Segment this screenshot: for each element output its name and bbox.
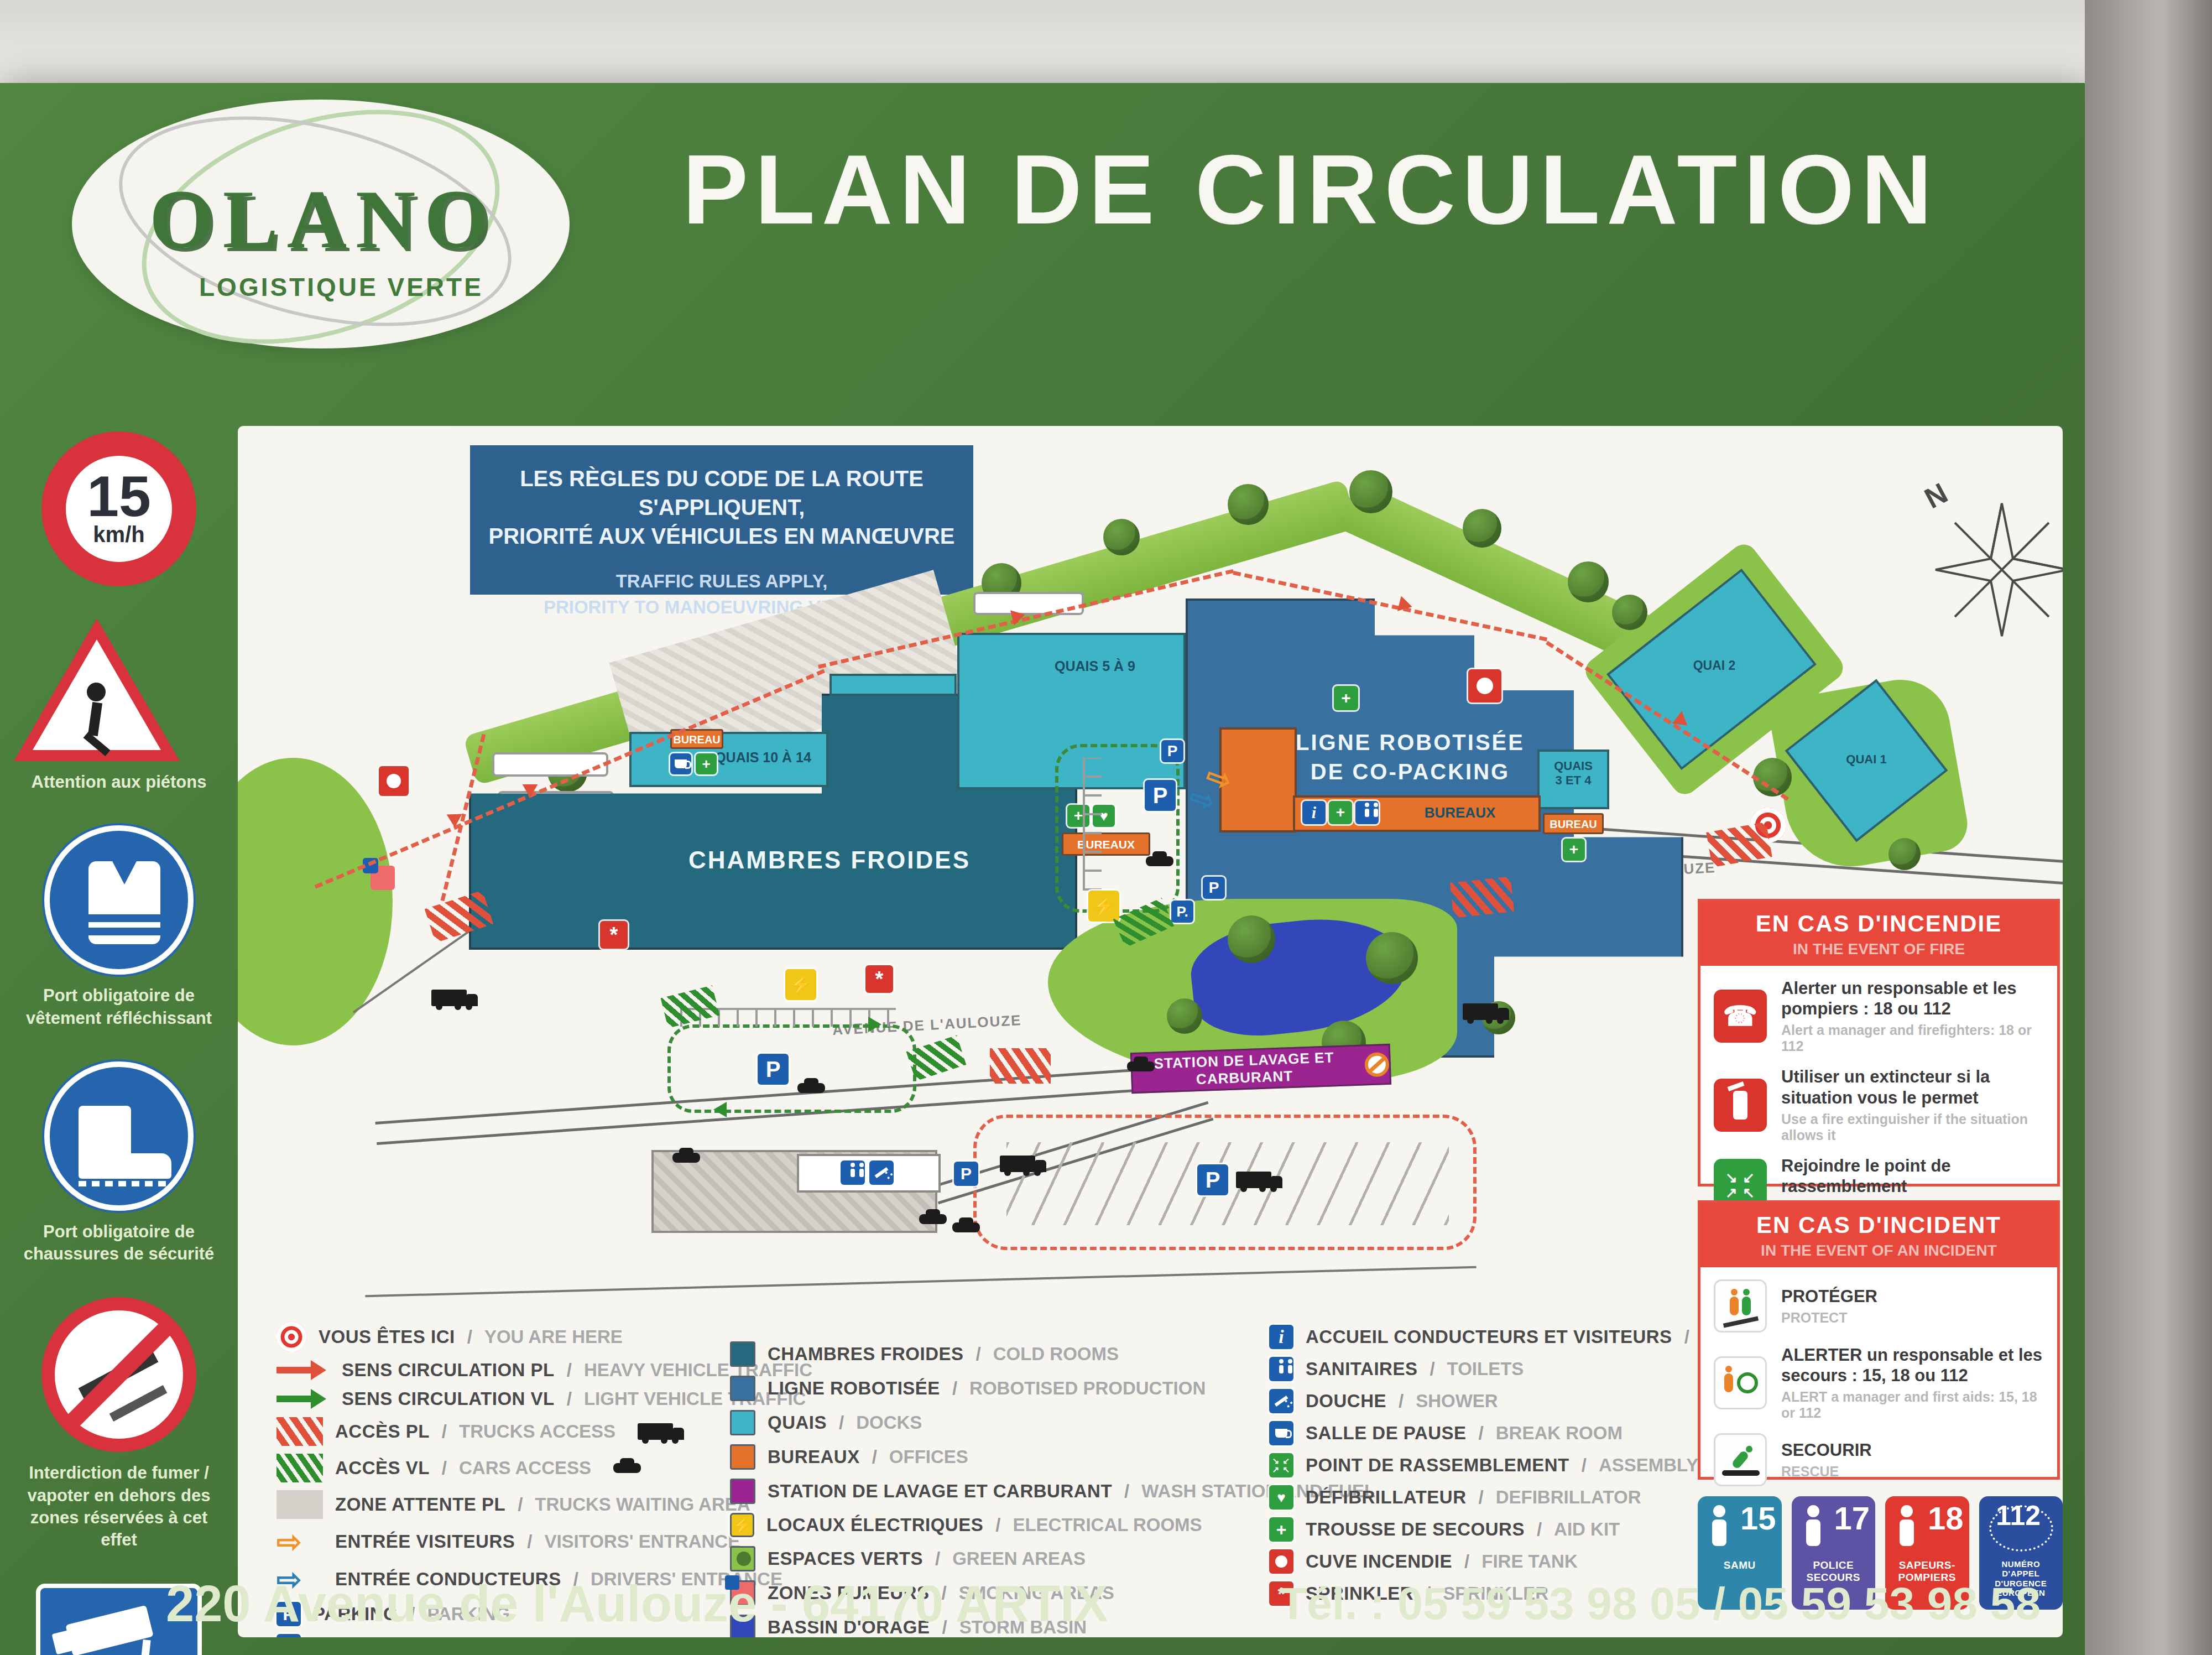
parking-icon-small: P	[954, 1162, 978, 1186]
building-quais-10-14-strip	[830, 674, 957, 696]
red-arrow-icon	[276, 1367, 312, 1373]
bureau-tag: BUREAU	[1543, 813, 1604, 834]
grey-zone-icon	[276, 1490, 323, 1519]
first-aid-kit-icon: +	[1269, 1517, 1293, 1542]
electrical-room-icon: ⚡	[785, 969, 816, 1000]
incident-instructions-box: EN CAS D'INCIDENT IN THE EVENT OF AN INC…	[1698, 1200, 2060, 1480]
wash-station-swatch	[730, 1479, 755, 1504]
sidebar-item-boots: Port obligatoire de chaussures de sécuri…	[14, 1061, 224, 1266]
parking-two-wheels-icon: P.	[1171, 901, 1193, 923]
robotised-line-swatch	[730, 1376, 755, 1401]
tree-icon	[1167, 998, 1202, 1034]
central-parking-loop	[1055, 744, 1180, 913]
fire-instructions-box: EN CAS D'INCENDIE IN THE EVENT OF FIRE ☎…	[1698, 899, 2060, 1186]
car-icon	[919, 1214, 947, 1224]
wall-background	[0, 0, 2212, 83]
circulation-plan-poster: OLANO LOGISTIQUE VERTE PLAN DE CIRCULATI…	[0, 83, 2090, 1655]
protect-icon	[1714, 1279, 1767, 1333]
parked-truck-outline	[492, 752, 608, 777]
no-smoking-vaping-icon	[41, 1297, 196, 1452]
safety-signs-sidebar: 15 km/h Attention aux piétons Port oblig…	[0, 348, 238, 1655]
car-icon	[613, 1463, 641, 1473]
first-aid-icon: +	[1334, 686, 1358, 710]
building-label: QUAIS 5 À 9	[1029, 658, 1161, 674]
sidebar-item-pedestrians: Attention aux piétons	[14, 618, 224, 793]
safety-boots-icon	[44, 1061, 194, 1211]
car-icon	[797, 1083, 825, 1093]
car-parking-icon: P	[758, 1054, 789, 1085]
tree-icon	[1228, 915, 1275, 963]
logo-tagline: LOGISTIQUE VERTE	[199, 272, 483, 302]
fire-box-item: ☎ Alerter un responsable et les pompiers…	[1700, 966, 2057, 1054]
incident-box-item: SECOURIRRESCUE	[1700, 1421, 2057, 1486]
route-arrow-icon	[447, 814, 463, 828]
olano-logo: OLANO LOGISTIQUE VERTE	[72, 100, 570, 348]
assembly-point-icon: ↘ ↙↗ ↖	[1269, 1453, 1293, 1477]
parking-icon-small: P	[1161, 740, 1183, 762]
person-icon	[1892, 1505, 1925, 1552]
hi-vis-vest-icon	[44, 825, 194, 975]
car-icon	[1127, 1061, 1155, 1071]
electrical-room-icon: ⚡	[1088, 891, 1119, 922]
trucks-access-hatch	[990, 1048, 1051, 1084]
sanitary-building	[797, 1154, 941, 1193]
trucks-access-hatch	[1450, 876, 1514, 918]
break-room-icon	[1269, 1421, 1293, 1445]
tree-icon	[1366, 932, 1418, 984]
green-arrow-icon	[276, 1396, 312, 1402]
truck-icon	[1463, 1003, 1498, 1020]
tree-icon	[1349, 470, 1392, 513]
building-label: LIGNE ROBOTISÉE DE CO-PACKING	[1283, 730, 1537, 784]
parked-truck-outline	[973, 592, 1084, 615]
fire-box-item: Utiliser un extincteur si la situation v…	[1700, 1054, 2057, 1143]
fire-tank-icon	[379, 766, 409, 796]
rescue-icon	[1714, 1433, 1767, 1486]
cold-rooms-swatch	[730, 1341, 755, 1367]
green-hatch-icon	[276, 1454, 323, 1482]
car-parking-loop	[667, 1024, 916, 1113]
pedestrian-warning-icon	[14, 618, 180, 761]
shower-icon	[1269, 1389, 1293, 1413]
offices-swatch	[730, 1444, 755, 1470]
wash-station-banner: STATION DE LAVAGE ET CARBURANT	[1130, 1044, 1391, 1094]
truck-icon	[1000, 1156, 1035, 1172]
traffic-rules-box: LES RÈGLES DU CODE DE LA ROUTE S'APPLIQU…	[470, 445, 973, 595]
toilets-icon	[1269, 1357, 1293, 1381]
toilets-icon	[841, 1160, 865, 1185]
truck-icon	[638, 1423, 673, 1440]
car-icon	[1146, 856, 1173, 866]
tree-icon	[1888, 838, 1921, 870]
fire-extinguisher-icon	[1714, 1079, 1767, 1132]
defibrillator-icon: ♥	[1269, 1485, 1293, 1510]
break-room-icon	[670, 753, 691, 774]
building-label: QUAIS 10 À 14	[702, 750, 824, 766]
incident-box-header: EN CAS D'INCIDENT IN THE EVENT OF AN INC…	[1700, 1203, 2057, 1267]
red-hatch-icon	[276, 1417, 323, 1446]
route-arrow-icon	[713, 1102, 727, 1117]
address: 220 Avenue de l'Aulouze - 64170 ARTIX	[166, 1575, 1108, 1633]
tree-icon	[1103, 519, 1140, 555]
car-icon	[952, 1222, 980, 1232]
building-label: BUREAUX	[1394, 804, 1526, 821]
person-icon	[1798, 1505, 1832, 1552]
reception-info-icon: i	[1302, 801, 1326, 824]
map-panel: LES RÈGLES DU CODE DE LA ROUTE S'APPLIQU…	[238, 426, 2063, 1637]
poster-footer: 220 Avenue de l'Aulouze - 64170 ARTIX Té…	[0, 1552, 2090, 1655]
incident-box-item: PROTÉGERPROTECT	[1700, 1267, 2057, 1333]
parking-slot-column	[1083, 758, 1102, 891]
truck-icon	[1236, 1172, 1271, 1188]
smoking-area-icon	[371, 866, 395, 890]
sprinkler-icon: *	[600, 921, 628, 949]
page-title: PLAN DE CIRCULATION	[586, 133, 2035, 246]
docks-swatch	[730, 1410, 755, 1435]
incident-box-item: ALERTER un responsable et les secours : …	[1700, 1333, 2057, 1421]
logo-text: OLANO	[111, 171, 536, 267]
first-aid-icon: +	[696, 753, 717, 774]
no-smoking-small-icon	[1364, 1052, 1390, 1078]
fire-tank-icon	[1468, 669, 1501, 702]
car-icon	[672, 1153, 700, 1163]
compass-rose: N	[1930, 498, 2063, 642]
building-label: QUAI 2	[1676, 658, 1753, 673]
you-are-here-icon	[276, 1322, 306, 1352]
toilets-icon	[1355, 801, 1379, 824]
tree-icon	[1568, 561, 1609, 602]
alert-icon	[1714, 1356, 1767, 1409]
fire-box-header: EN CAS D'INCENDIE IN THE EVENT OF FIRE	[1700, 902, 2057, 966]
building-label: QUAIS 3 ET 4	[1537, 759, 1609, 788]
truck-parking-icon: P	[1197, 1164, 1228, 1195]
electrical-rooms-icon: ⚡	[730, 1513, 754, 1537]
first-aid-icon: +	[1563, 839, 1585, 861]
station-label: STATION DE LAVAGE ET CARBURANT	[1132, 1048, 1357, 1090]
first-aid-icon: +	[1329, 801, 1352, 824]
sidebar-item-speed: 15 km/h	[41, 431, 196, 586]
tree-icon	[1463, 509, 1501, 548]
parking-icon: P	[1145, 780, 1176, 811]
route-arrow-icon	[868, 1017, 881, 1032]
building-label: QUAI 1	[1830, 752, 1902, 767]
shower-icon	[869, 1160, 894, 1185]
person-icon	[1704, 1505, 1738, 1552]
sprinkler-icon: *	[865, 965, 893, 993]
phone-numbers: Tél. : 05 59 53 98 05 / 05 59 53 98 58	[1279, 1578, 2041, 1630]
site-boundary-line	[365, 1266, 1476, 1298]
parking-icon-small: P	[1203, 877, 1225, 899]
tree-icon	[1612, 595, 1647, 630]
fire-phone-icon: ☎	[1714, 990, 1767, 1043]
sidebar-item-vest: Port obligatoire de vêtement réfléchissa…	[14, 825, 224, 1029]
wall-background	[2085, 0, 2212, 1655]
truck-icon	[431, 990, 467, 1006]
speed-limit-15-icon: 15 km/h	[41, 431, 196, 586]
walking-person-icon	[82, 683, 111, 748]
building-label: CHAMBRES FROIDES	[675, 846, 984, 874]
sidebar-item-no-smoking: Interdiction de fumer / vapoter en dehor…	[14, 1297, 224, 1551]
reception-icon: i	[1269, 1325, 1293, 1349]
tree-icon	[1228, 484, 1269, 525]
photo-of-poster: OLANO LOGISTIQUE VERTE PLAN DE CIRCULATI…	[0, 0, 2212, 1655]
